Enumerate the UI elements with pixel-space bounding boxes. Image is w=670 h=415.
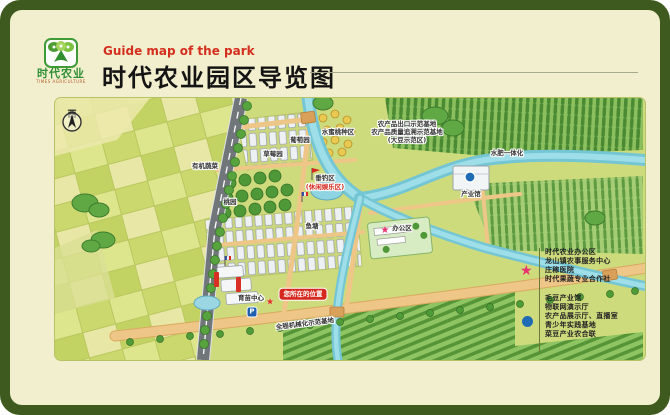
- map-label: 有机蔬菜: [192, 163, 218, 170]
- legend-item: 菜豆产业农合联: [545, 330, 643, 339]
- legend-star-list: 时代农业办公区 龙山镇农事服务中心 庄稼医院 时代果蔬专业合作社: [545, 248, 643, 284]
- map-label: 办公区: [392, 225, 412, 232]
- map-legend: ★ 时代农业办公区 龙山镇农事服务中心 庄稼医院 时代果蔬专业合作社 毛豆产业馆…: [519, 246, 643, 356]
- legend-item: 庄稼医院: [545, 266, 643, 275]
- map-label: (休闲娱乐区): [306, 184, 344, 191]
- legend-item: 毛豆产业馆: [545, 294, 643, 303]
- brand-logo: 时代农业 TIMES AGRICULTURE: [30, 38, 92, 90]
- logo-name: 时代农业: [30, 68, 92, 79]
- industry-hall-building: [453, 166, 489, 190]
- legend-item: 物联网演示厅: [545, 303, 643, 312]
- legend-item: 龙山镇农事服务中心: [545, 257, 643, 266]
- legend-item: 青少年实践基地: [545, 321, 643, 330]
- logo-emblem-icon: [44, 38, 78, 68]
- map-label: 水蜜桃种区: [322, 129, 355, 136]
- map-label: 育苗中心: [238, 295, 264, 302]
- legend-star-icon: ★: [520, 264, 533, 278]
- map-label: 水肥一体化: [491, 150, 524, 157]
- legend-markers: ★: [519, 246, 537, 356]
- blue-dot-marker: [465, 172, 475, 182]
- compass-arrow-icon: [61, 110, 83, 134]
- legend-dot-icon: [522, 316, 533, 327]
- legend-dot-list: 毛豆产业馆 物联网演示厅 农产品展示厅、直播室 青少年实践基地 菜豆产业农合联: [545, 294, 643, 339]
- logo-subtitle: TIMES AGRICULTURE: [30, 79, 92, 84]
- legend-item: 时代农业办公区: [545, 248, 643, 257]
- map-label: (大豆示范区): [388, 137, 426, 144]
- map-label: 草莓园: [263, 151, 283, 158]
- map-label: 垂钓区: [315, 175, 335, 182]
- page-title: 时代农业园区导览图: [102, 58, 336, 93]
- header: 时代农业 TIMES AGRICULTURE Guide map of the …: [10, 10, 660, 90]
- legend-item: 时代果蔬专业合作社: [545, 275, 643, 284]
- poster-card: 时代农业 TIMES AGRICULTURE Guide map of the …: [10, 10, 660, 405]
- map-label: 产业馆: [461, 191, 481, 198]
- map-label: 葡萄园: [290, 137, 310, 144]
- header-subtitle-en: Guide map of the park: [103, 44, 255, 58]
- parking-sign: P: [248, 308, 257, 317]
- map-label: 鱼塘: [306, 223, 319, 230]
- map-label: 农产品质量追溯示范基地: [371, 129, 443, 136]
- map-label: 农产品出口示范基地: [378, 121, 437, 128]
- legend-item: 农产品展示厅、直播室: [545, 312, 643, 321]
- you-are-here-star: ★: [266, 299, 274, 308]
- poster-frame: 时代农业 TIMES AGRICULTURE Guide map of the …: [0, 0, 670, 415]
- header-divider: [310, 72, 638, 73]
- legend-items: 时代农业办公区 龙山镇农事服务中心 庄稼医院 时代果蔬专业合作社 毛豆产业馆 物…: [539, 248, 643, 352]
- compass: 西: [61, 110, 83, 120]
- office-star-marker: ★: [381, 226, 390, 236]
- you-are-here-badge: 您所在的位置: [280, 289, 327, 300]
- map-label: 桃园: [224, 199, 237, 206]
- crop-rows-mid-right: [467, 176, 643, 254]
- park-map: 西 葡萄园 草莓园 有机蔬菜 桃园 垂钓区 (休闲娱乐区) 水蜜桃种区 农产品出…: [55, 98, 645, 360]
- pond: [194, 296, 220, 310]
